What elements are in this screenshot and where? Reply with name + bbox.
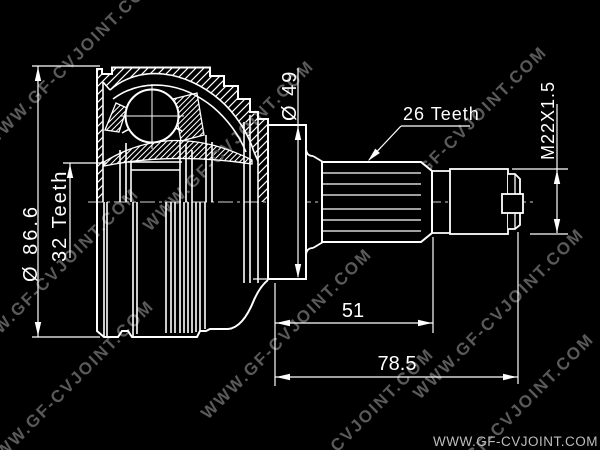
dim-inner-spline-label: 32 Teeth <box>49 170 71 262</box>
watermark-text: WWW.GF-CVJOINT.COM <box>419 329 597 450</box>
thread-section <box>450 169 508 234</box>
watermark-text: WWW.GF-CVJOINT.COM <box>0 296 158 450</box>
drawing-svg: WWW.GF-CVJOINT.COM WWW.GF-CVJOINT.COM WW… <box>0 0 600 450</box>
dim-outer-diameter-label: Ø 86.6 <box>20 204 42 282</box>
dim-stub-diameter-label: Ø 49 <box>279 70 301 121</box>
dim-thread-label: M22X1.5 <box>538 81 558 160</box>
cotter-pin-slot <box>502 194 523 213</box>
site-watermark-footer: WWW.GF-CVJOINT.COM <box>433 434 598 449</box>
stub-shaft <box>268 125 523 279</box>
boot-seat-flange <box>268 125 306 279</box>
dim-shaft-spline-label: 26 Teeth <box>403 104 480 124</box>
dim-overall-length-label: 78.5 <box>378 353 417 375</box>
spline-section <box>322 162 432 242</box>
cv-joint-technical-drawing: WWW.GF-CVJOINT.COM WWW.GF-CVJOINT.COM WW… <box>0 0 600 450</box>
dim-spline-length-label: 51 <box>342 300 364 322</box>
